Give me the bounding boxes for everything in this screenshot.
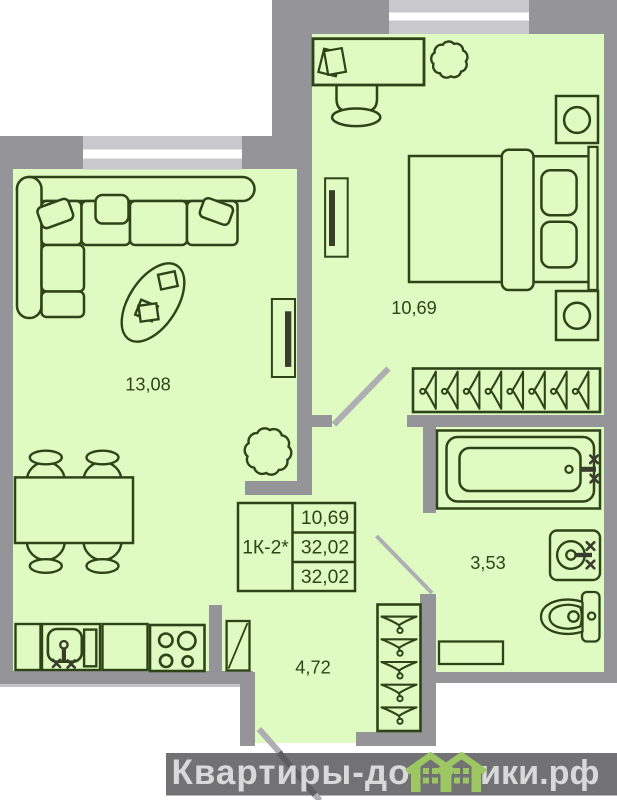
svg-text:Квартиры-до: Квартиры-до <box>172 753 411 792</box>
svg-text:ики.рф: ики.рф <box>480 754 599 792</box>
svg-text:13,08: 13,08 <box>125 375 171 395</box>
svg-text:3,53: 3,53 <box>470 553 505 573</box>
svg-text:32,02: 32,02 <box>301 538 349 559</box>
svg-text:32,02: 32,02 <box>301 567 349 588</box>
svg-text:10,69: 10,69 <box>391 298 437 318</box>
svg-text:4,72: 4,72 <box>295 658 330 678</box>
svg-text:10,69: 10,69 <box>301 508 349 529</box>
svg-text:1К-2*: 1К-2* <box>242 538 289 559</box>
